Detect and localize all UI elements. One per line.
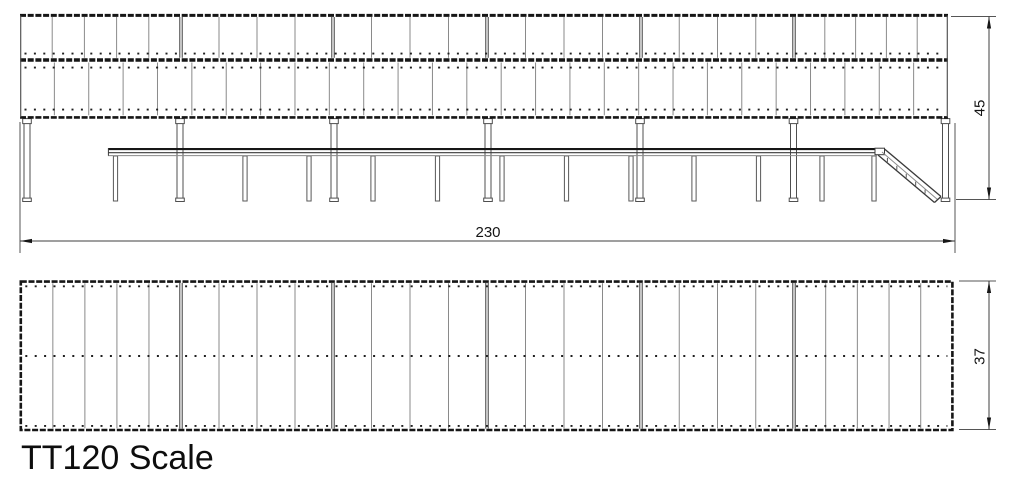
platform-leg: [629, 156, 633, 201]
canopy-column: [791, 120, 797, 202]
side-elevation-view: [20, 15, 950, 202]
dimension-arrow: [20, 239, 32, 243]
platform-leg: [243, 156, 247, 201]
platform-leg: [872, 156, 876, 201]
dimension-arrow: [987, 418, 991, 430]
column-foot: [941, 198, 950, 201]
plan-view: [21, 282, 953, 430]
column-cap: [941, 119, 950, 124]
ramp-head-cap: [875, 148, 885, 155]
column-cap: [330, 119, 339, 124]
column-cap: [484, 119, 493, 124]
platform-leg: [500, 156, 504, 201]
length-dimension-label: 230: [475, 224, 500, 241]
column-foot: [330, 198, 339, 201]
platform-leg: [435, 156, 439, 201]
technical-drawing-canvas: 230 45 37 TT120 Scale: [0, 0, 1024, 482]
platform-leg: [820, 156, 824, 201]
dimension-annotations: [20, 17, 996, 430]
height-dimension-label: 45: [972, 100, 989, 117]
canopy-column: [943, 120, 949, 202]
column-foot: [636, 198, 645, 201]
platform-leg: [692, 156, 696, 201]
canopy-column: [24, 120, 30, 202]
dimension-arrow: [987, 188, 991, 200]
column-cap: [789, 119, 798, 124]
column-foot: [23, 198, 32, 201]
canopy-column: [485, 120, 491, 202]
platform-leg: [756, 156, 760, 201]
scale-title: TT120 Scale: [21, 439, 214, 478]
platform-leg: [113, 156, 117, 201]
drawing-svg: 230 45 37: [0, 0, 1024, 482]
dimension-arrow: [987, 281, 991, 293]
ramp-top-edge: [885, 149, 942, 197]
column-cap: [23, 119, 32, 124]
column-foot: [789, 198, 798, 201]
column-foot: [484, 198, 493, 201]
depth-dimension-label: 37: [972, 348, 989, 365]
canopy-column: [331, 120, 337, 202]
platform-leg: [371, 156, 375, 201]
column-foot: [176, 198, 185, 201]
column-cap: [176, 119, 185, 124]
canopy-column: [177, 120, 183, 202]
ramp-surface-line: [882, 152, 938, 200]
dimension-arrow: [943, 239, 955, 243]
dimension-arrow: [987, 17, 991, 29]
platform-leg: [564, 156, 568, 201]
platform-leg: [307, 156, 311, 201]
ramp-bottom-edge: [878, 155, 935, 203]
column-cap: [636, 119, 645, 124]
canopy-column: [637, 120, 643, 202]
